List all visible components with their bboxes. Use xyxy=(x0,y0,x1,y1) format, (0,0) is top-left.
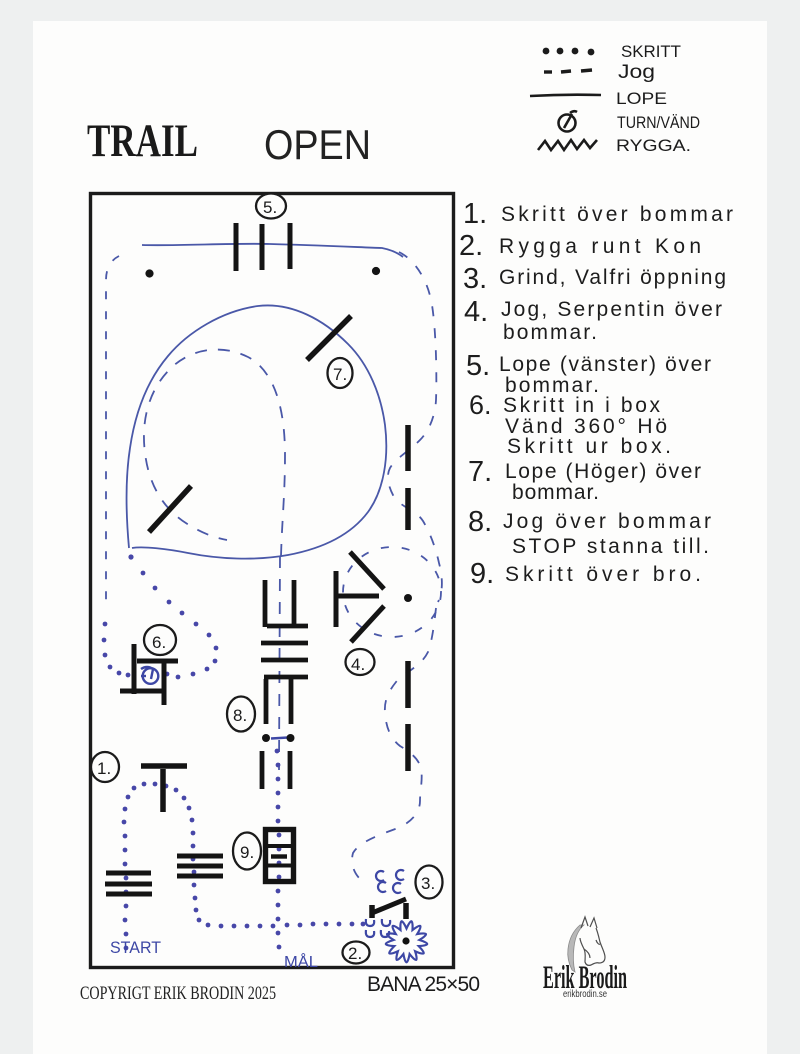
svg-text:3.: 3. xyxy=(421,874,435,893)
svg-text:bommar.: bommar. xyxy=(512,481,599,504)
svg-text:Jog, Serpentin över: Jog, Serpentin över xyxy=(501,298,722,321)
svg-text:TURN/VÄND: TURN/VÄND xyxy=(617,113,700,132)
svg-text:1.: 1. xyxy=(463,198,487,230)
svg-text:Skritt över bommar: Skritt över bommar xyxy=(501,203,733,226)
svg-text:5.: 5. xyxy=(263,198,277,217)
svg-text:8.: 8. xyxy=(233,706,247,725)
svg-text:7.: 7. xyxy=(468,456,492,488)
svg-text:2.: 2. xyxy=(348,944,362,963)
svg-text:SKRITT: SKRITT xyxy=(621,42,681,61)
svg-text:Skritt ur box.: Skritt ur box. xyxy=(507,435,671,458)
svg-text:9.: 9. xyxy=(470,558,494,590)
svg-text:5.: 5. xyxy=(466,350,490,382)
svg-text:9.: 9. xyxy=(240,843,254,862)
svg-text:MÅL: MÅL xyxy=(284,952,318,971)
svg-text:1.: 1. xyxy=(97,759,111,778)
svg-text:Lope (vänster) över: Lope (vänster) över xyxy=(499,353,711,376)
svg-text:8.: 8. xyxy=(468,506,492,538)
svg-text:6.: 6. xyxy=(469,390,492,420)
svg-text:Skritt in i box: Skritt in i box xyxy=(503,394,661,417)
svg-text:RYGGA.: RYGGA. xyxy=(616,136,691,155)
svg-text:TRAIL: TRAIL xyxy=(87,115,198,167)
svg-text:BANA 25×50: BANA 25×50 xyxy=(367,973,480,996)
svg-text:4.: 4. xyxy=(351,655,365,674)
svg-text:erikbrodin.se: erikbrodin.se xyxy=(563,989,607,1000)
svg-text:LOPE: LOPE xyxy=(616,89,667,108)
svg-text:2.: 2. xyxy=(459,230,483,262)
svg-text:START: START xyxy=(110,938,161,957)
svg-text:Jog: Jog xyxy=(618,62,655,83)
svg-text:7.: 7. xyxy=(333,365,347,384)
svg-text:COPYRIGT ERIK BRODIN 2025: COPYRIGT ERIK BRODIN 2025 xyxy=(80,983,276,1004)
svg-text:6.: 6. xyxy=(152,633,166,652)
svg-text:Grind, Valfri öppning: Grind, Valfri öppning xyxy=(499,266,726,289)
svg-text:3.: 3. xyxy=(463,263,487,295)
svg-text:bommar.: bommar. xyxy=(503,321,597,344)
svg-text:4.: 4. xyxy=(464,296,488,328)
svg-text:OPEN: OPEN xyxy=(264,121,371,168)
